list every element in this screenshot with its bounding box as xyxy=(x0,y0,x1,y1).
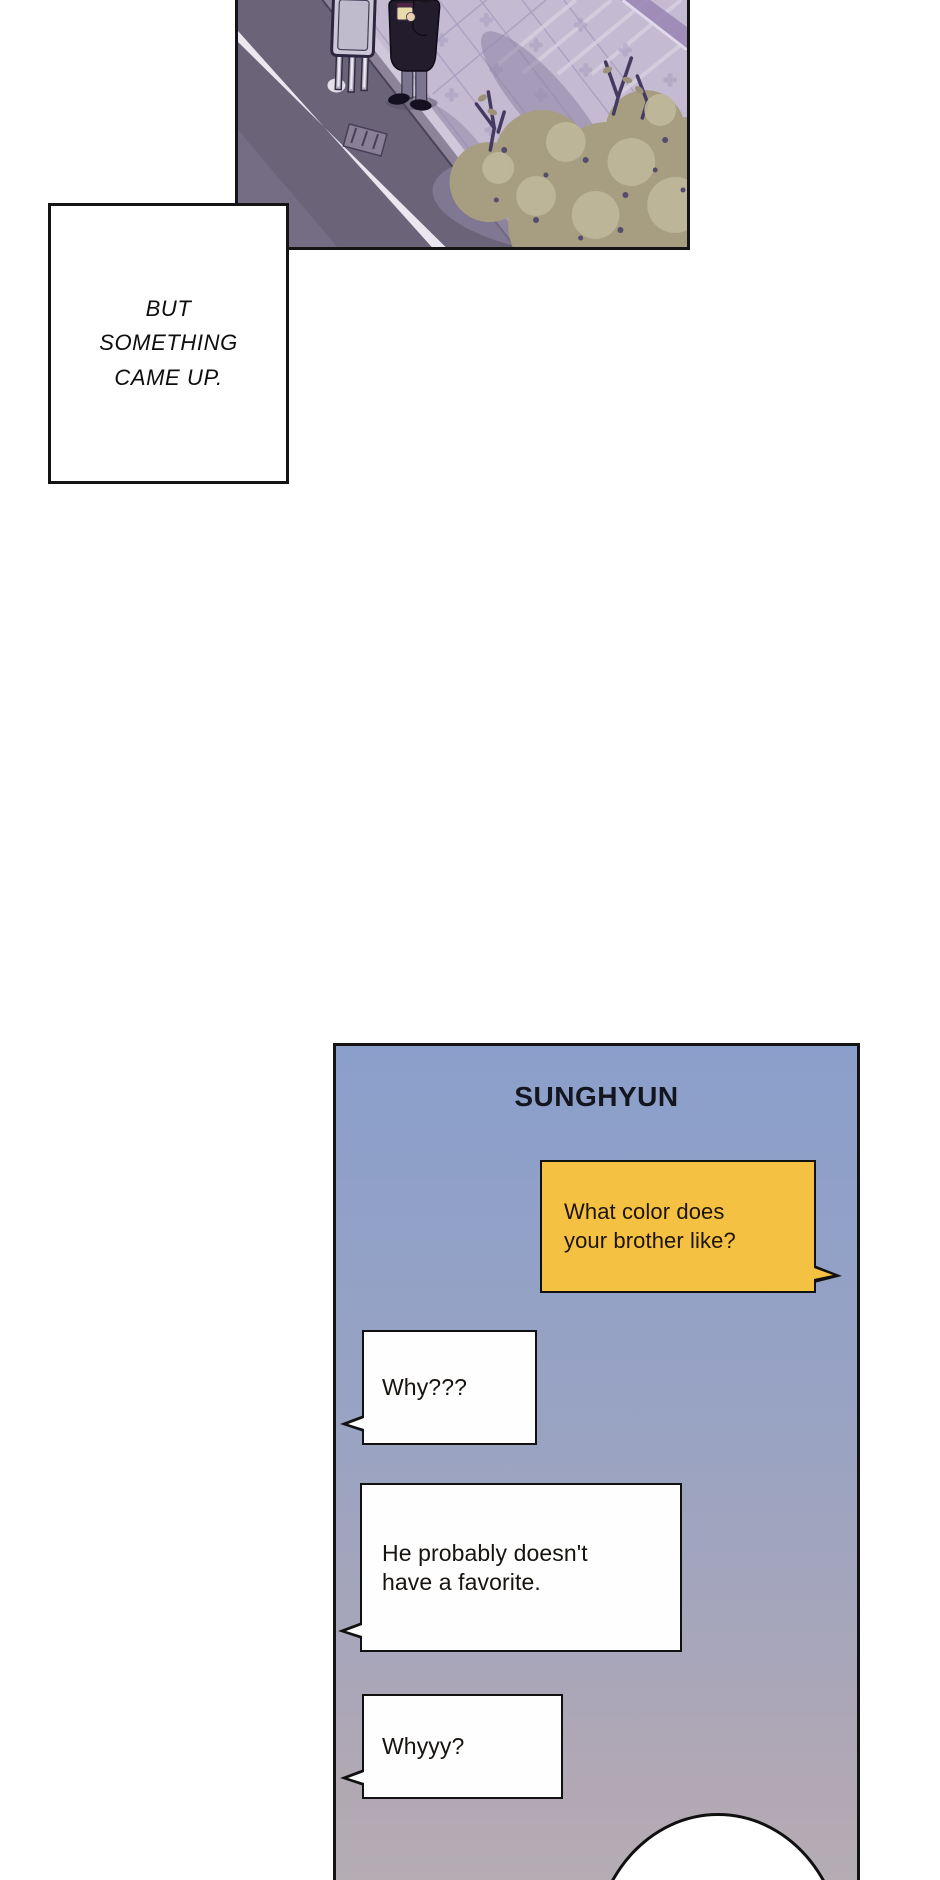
street-scene-panel xyxy=(235,0,690,250)
webtoon-page: BUT SOMETHING CAME UP. SUNGHYUN What col… xyxy=(0,0,940,1880)
message-line: Why??? xyxy=(382,1373,535,1402)
signboard xyxy=(327,0,375,94)
caption-line: SOMETHING xyxy=(99,326,238,361)
chat-screen-panel: SUNGHYUN What color does your brother li… xyxy=(333,1043,860,1880)
street-scene-illustration xyxy=(238,0,687,247)
chat-contact-name: SUNGHYUN xyxy=(336,1081,857,1113)
chat-message-received-3: Whyyy? xyxy=(362,1694,563,1799)
message-line: your brother like? xyxy=(564,1227,814,1256)
speech-balloon-cutoff xyxy=(592,1813,844,1880)
hand xyxy=(406,13,415,22)
chat-message-sent: What color does your brother like? xyxy=(540,1160,816,1293)
caption-line: BUT xyxy=(146,292,192,327)
message-line: have a favorite. xyxy=(382,1568,680,1597)
narration-caption-box: BUT SOMETHING CAME UP. xyxy=(48,203,289,484)
chat-message-received-2: He probably doesn't have a favorite. xyxy=(360,1483,682,1652)
message-line: He probably doesn't xyxy=(382,1539,680,1568)
message-line: Whyyy? xyxy=(382,1732,561,1761)
caption-line: CAME UP. xyxy=(114,361,222,396)
message-line: What color does xyxy=(564,1198,814,1227)
chat-message-received-1: Why??? xyxy=(362,1330,537,1445)
